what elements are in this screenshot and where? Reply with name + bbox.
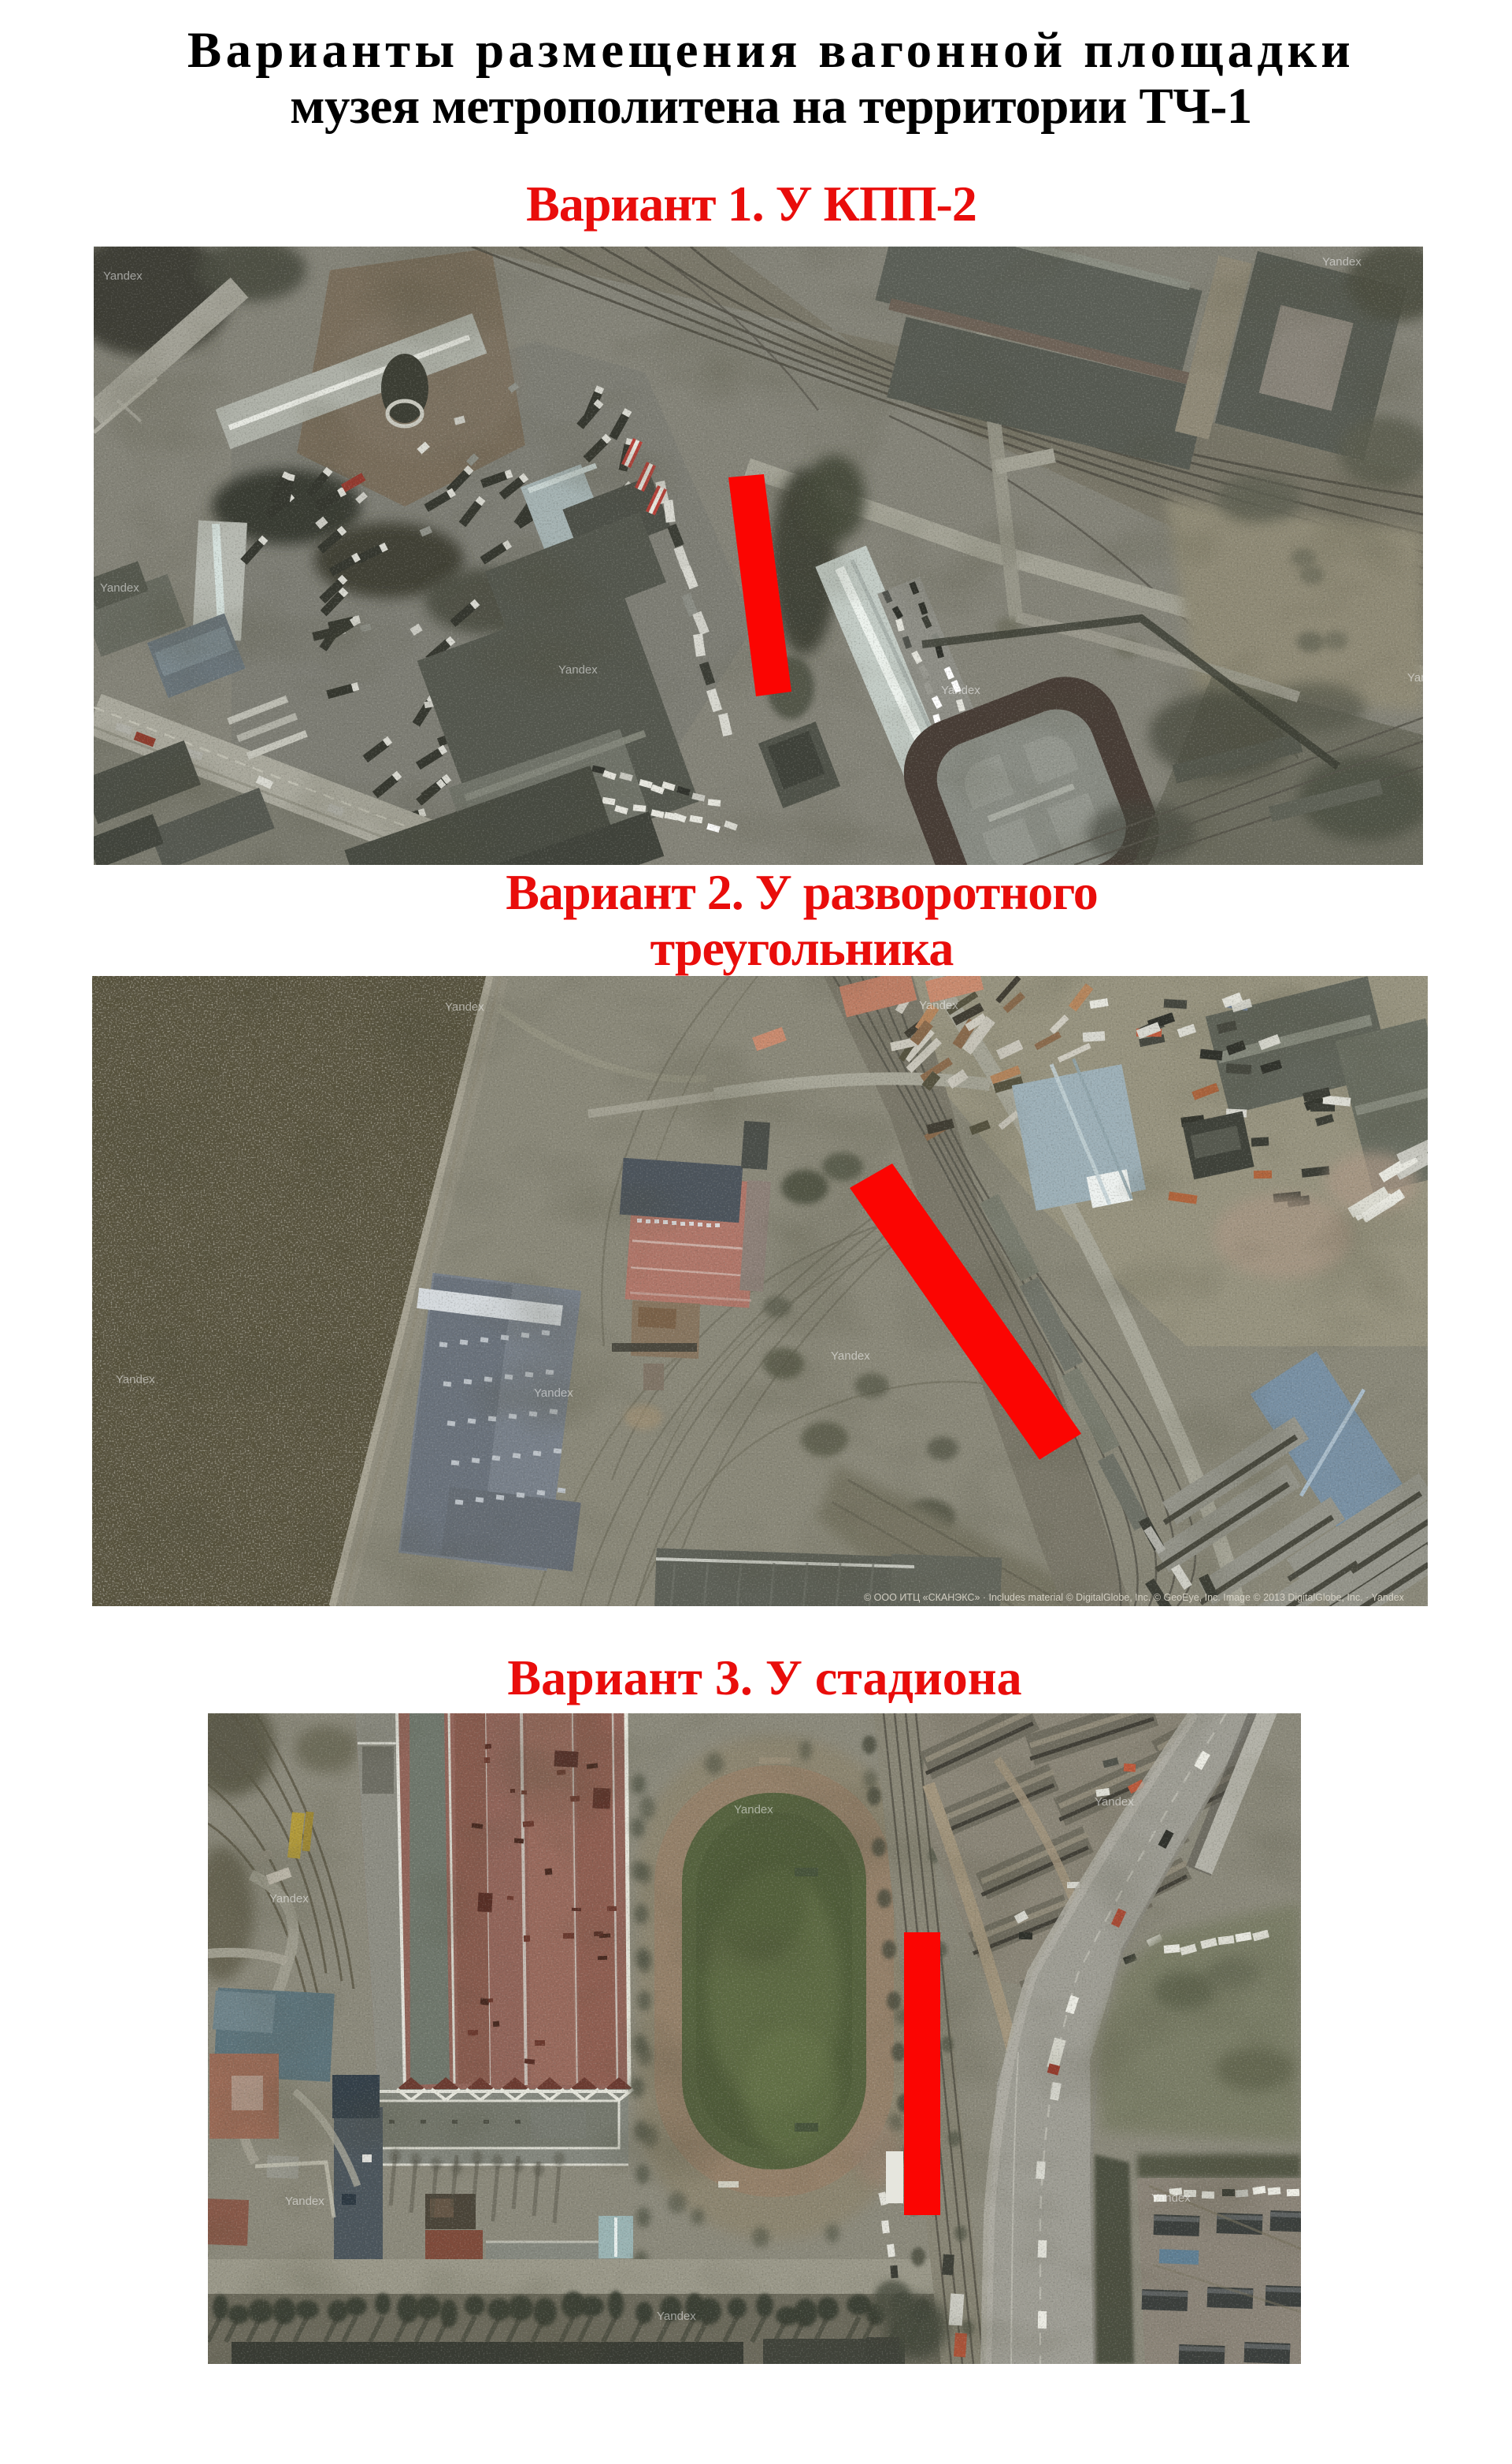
svg-text:Yandex: Yandex <box>831 1349 870 1363</box>
svg-text:© ООО ИТЦ «СКАНЭКС» · Includes: © ООО ИТЦ «СКАНЭКС» · Includes material … <box>864 1592 1405 1603</box>
svg-text:Yandex: Yandex <box>558 663 598 677</box>
svg-text:Yandex: Yandex <box>445 1000 484 1014</box>
svg-text:Yandex: Yandex <box>657 2310 696 2323</box>
svg-text:Yandex: Yandex <box>103 269 143 283</box>
svg-text:Yandex: Yandex <box>534 1386 573 1400</box>
svg-text:Yandex: Yandex <box>1151 2191 1191 2205</box>
svg-text:Yandex: Yandex <box>919 999 958 1012</box>
svg-text:Yandex: Yandex <box>734 1803 773 1816</box>
svg-text:Yandex: Yandex <box>1407 671 1423 685</box>
svg-text:Yandex: Yandex <box>1095 1795 1134 1809</box>
svg-text:Yandex: Yandex <box>116 1373 155 1386</box>
svg-text:Yandex: Yandex <box>100 581 139 595</box>
svg-text:Yandex: Yandex <box>941 684 980 697</box>
svg-text:Yandex: Yandex <box>1322 255 1362 269</box>
svg-text:Yandex: Yandex <box>269 1892 309 1906</box>
svg-text:Yandex: Yandex <box>285 2195 324 2208</box>
